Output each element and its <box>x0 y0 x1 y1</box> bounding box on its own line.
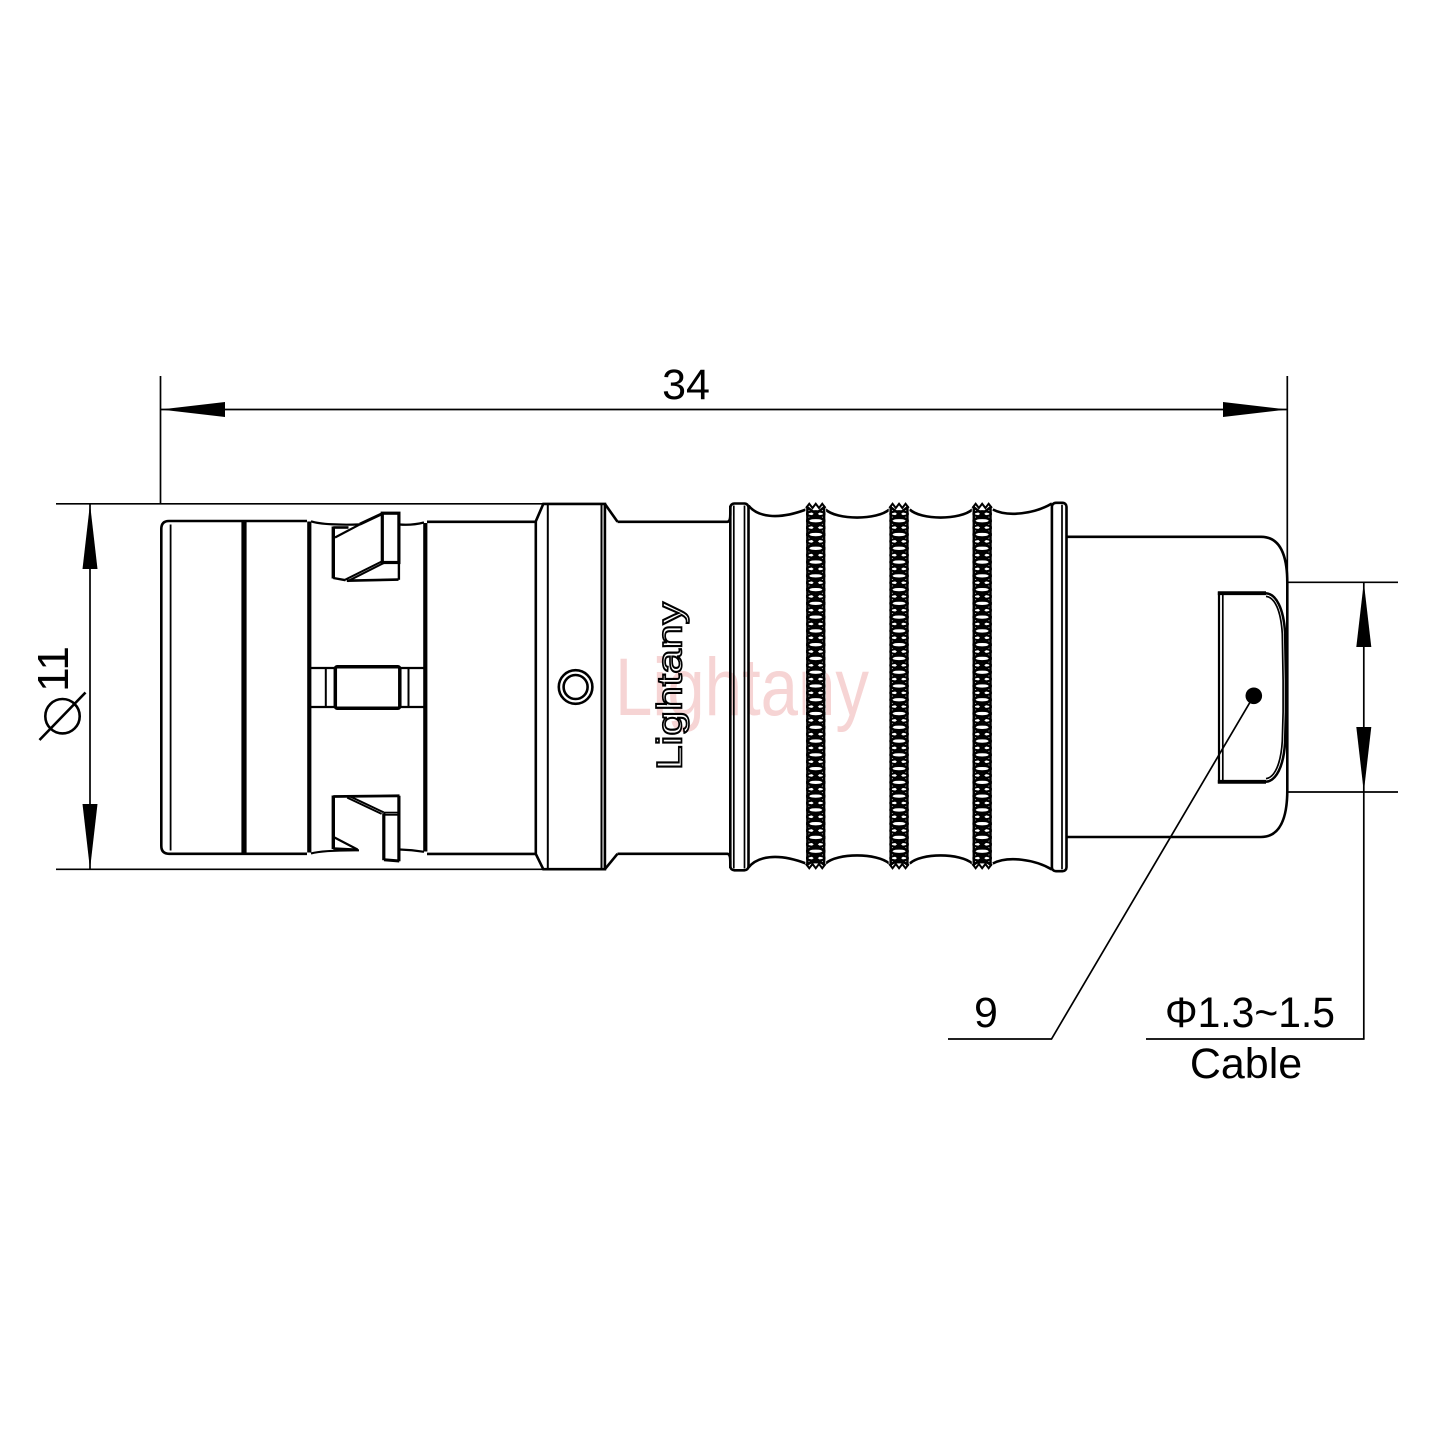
svg-text:34: 34 <box>662 361 710 409</box>
svg-text:Cable: Cable <box>1190 1040 1302 1088</box>
svg-text:Lightany: Lightany <box>651 602 690 771</box>
svg-text:11: 11 <box>29 646 78 692</box>
svg-text:9: 9 <box>974 989 998 1037</box>
svg-text:Φ1.3~1.5: Φ1.3~1.5 <box>1165 989 1335 1037</box>
